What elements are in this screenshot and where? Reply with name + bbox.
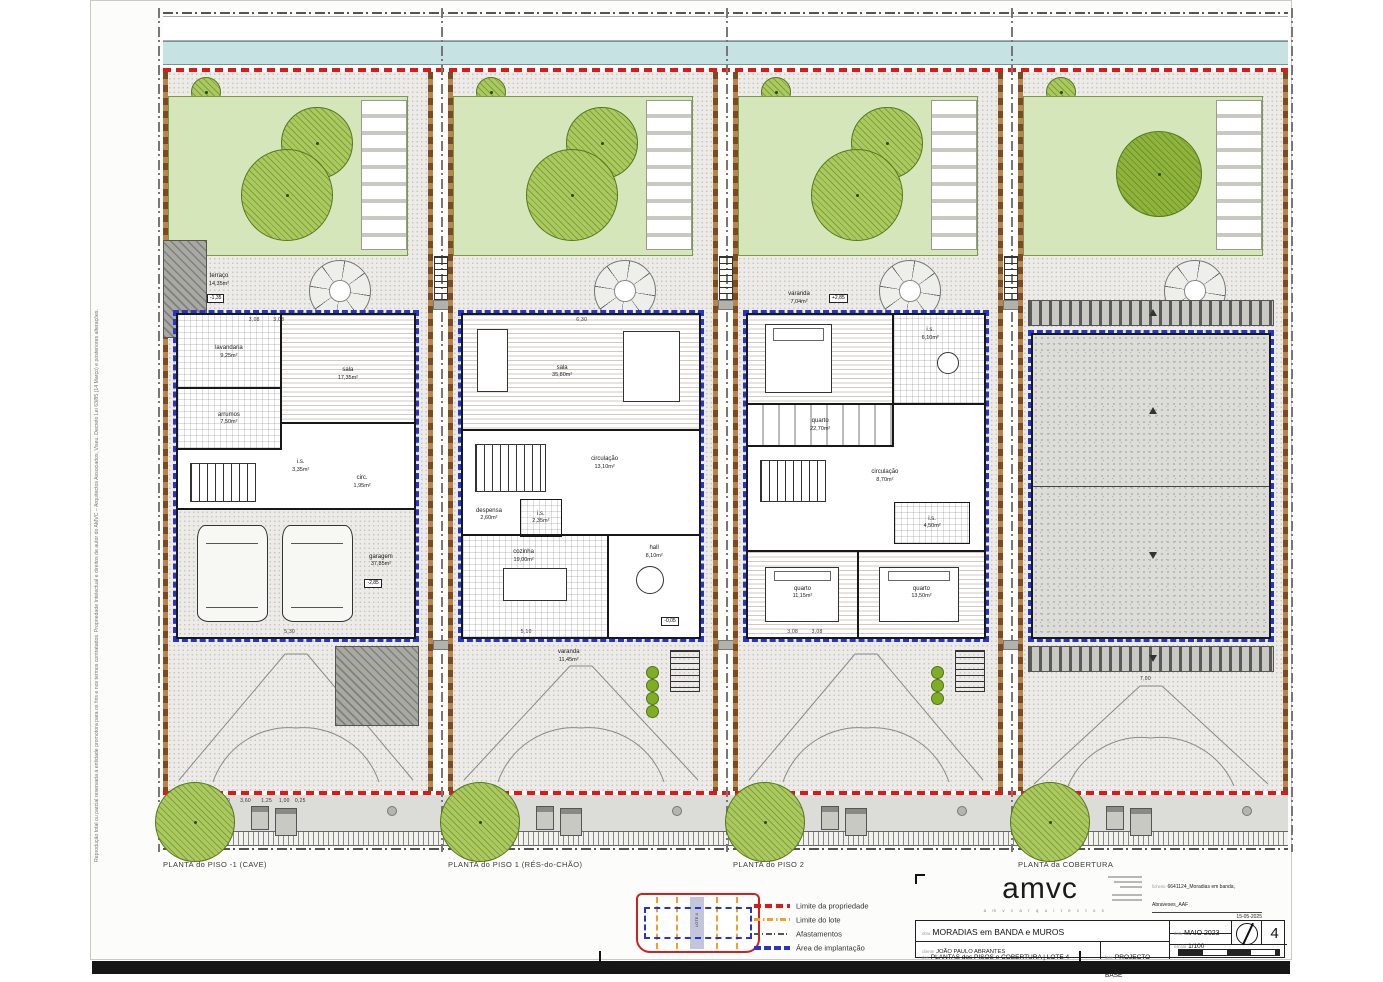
manhole bbox=[1242, 806, 1252, 816]
lot-area: 15,05 7,00 bbox=[1018, 72, 1288, 791]
neighbor-stairs bbox=[719, 256, 733, 302]
room-circulacao-label: circulação8,70m² bbox=[871, 469, 898, 483]
lot-wall-right bbox=[1283, 72, 1288, 791]
gap-wall bbox=[1003, 300, 1019, 310]
level-marker: -1,35 bbox=[207, 294, 224, 303]
shrub bbox=[646, 666, 659, 679]
lot-separator-line bbox=[1291, 8, 1293, 852]
utility-box bbox=[275, 808, 297, 836]
gap-wall bbox=[718, 640, 734, 650]
plan-caption: PLANTA do PISO -1 (CAVE) bbox=[163, 860, 267, 869]
car bbox=[282, 525, 353, 621]
level-marker: +2,85 bbox=[829, 294, 848, 303]
room-lavandaria: lavandaria9,25m² bbox=[178, 315, 282, 389]
date-scale-cell: dataMAIO 2023 escala1/100 4 bbox=[1169, 921, 1286, 959]
lot-separator-line bbox=[726, 8, 728, 852]
lot-separator-line bbox=[1011, 8, 1013, 852]
varanda-label: varanda7,04m² bbox=[788, 291, 810, 305]
exterior-stairs bbox=[670, 650, 700, 692]
roof-deck-top bbox=[1028, 300, 1274, 326]
dimension-text: 5,00 3,60 1,25 1,00 0,25 bbox=[219, 798, 306, 804]
shrub bbox=[931, 666, 944, 679]
utility-box bbox=[536, 806, 554, 830]
address-line bbox=[1120, 886, 1142, 888]
room-quarto-2: quarto11,15m² 3,08 3,08 bbox=[748, 550, 859, 637]
lot-wall-right bbox=[428, 72, 433, 791]
building-footprint: i.s.6,10m² quarto22,70m² circulação8,70m… bbox=[743, 310, 989, 642]
room-sala: sala17,35m² bbox=[282, 315, 414, 424]
legend-swatch bbox=[754, 904, 790, 908]
front-yard: varanda11,45m² bbox=[458, 644, 704, 791]
project-title-line: obraMORADIAS em BANDA e MUROS bbox=[922, 922, 1169, 940]
roof-outline bbox=[1028, 330, 1274, 642]
shrub bbox=[931, 692, 944, 705]
room-is-suite: i.s.6,10m² bbox=[894, 315, 984, 405]
level-marker: -0,05 bbox=[661, 617, 678, 626]
slope-arrow-icon bbox=[1149, 309, 1157, 316]
utility-box bbox=[1130, 808, 1152, 836]
utility-box bbox=[845, 808, 867, 836]
slope-arrow-icon bbox=[1149, 407, 1157, 414]
floor-plan-piso-2: i.s.6,10m² quarto22,70m² circulação8,70m… bbox=[746, 313, 986, 639]
keyplan-implantation-rect bbox=[644, 907, 752, 939]
room-is: i.s.2,35m² bbox=[520, 499, 562, 538]
bed bbox=[765, 324, 831, 393]
plan-panel-piso-2: varanda7,04m² +2,85 i.s.6,10m² quarto22,… bbox=[733, 10, 1003, 875]
stairs bbox=[190, 463, 256, 502]
legend-item-implantacao: Área de implantação bbox=[754, 939, 865, 957]
neighbor-stairs bbox=[1004, 256, 1018, 302]
sheet-bottom-bar bbox=[92, 961, 1290, 974]
legend: LOTE 4 Limite da propriedade Limite do l… bbox=[636, 891, 926, 961]
shrub bbox=[646, 705, 659, 718]
pergola-strip bbox=[1216, 100, 1262, 250]
driveway-splay bbox=[1028, 676, 1274, 788]
room-hall: hall8,10m² -0,05 bbox=[609, 534, 699, 637]
room-circulacao-label: circulação13,10m² bbox=[591, 456, 618, 470]
utility-box bbox=[821, 806, 839, 830]
front-yard bbox=[743, 644, 989, 791]
utility-box bbox=[1106, 806, 1124, 830]
pergola-strip bbox=[646, 100, 692, 250]
project-title: MORADIAS em BANDA e MUROS bbox=[932, 927, 1064, 937]
firm-logo: amvc bbox=[960, 872, 1120, 906]
lot-separator-line bbox=[441, 8, 443, 852]
room-cozinha: cozinha19,00m² 5,10 bbox=[463, 534, 609, 637]
street-tree bbox=[155, 782, 235, 862]
keyplan: LOTE 4 bbox=[636, 893, 760, 953]
stairs bbox=[475, 444, 546, 492]
plan-panel-cobertura: 15,05 7,00 PLANTA da COBERTURA bbox=[1018, 10, 1288, 875]
building-footprint: 6,30 sala35,80m² circulação13,10m² despe… bbox=[458, 310, 704, 642]
shrub bbox=[646, 692, 659, 705]
roof-plan bbox=[1031, 333, 1271, 639]
address-line bbox=[1114, 881, 1142, 883]
street-tree bbox=[725, 782, 805, 862]
gap-wall bbox=[433, 640, 449, 650]
plan-caption: PLANTA do PISO 2 bbox=[733, 860, 804, 869]
drawing-name-cell: desPLANTAS dos PISOS e COBERTURA | LOTE … bbox=[916, 942, 1101, 959]
room-is-label: i.s.3,35m² bbox=[292, 459, 309, 473]
file-row: ficheiro6641124_Moradias em banda, Abrav… bbox=[1152, 874, 1262, 913]
pergola-strip bbox=[931, 100, 977, 250]
floor-plan-res-do-chao: 6,30 sala35,80m² circulação13,10m² despe… bbox=[461, 313, 701, 639]
firm-logo-subtitle: a m v c a r q u i t e c t o s bbox=[945, 908, 1145, 913]
legend-swatch bbox=[754, 918, 790, 921]
project-info-cell: obraMORADIAS em BANDA e MUROS clienteJOÃ… bbox=[916, 921, 1169, 942]
dimension-text: 5,30 bbox=[284, 629, 295, 635]
tree bbox=[526, 149, 618, 241]
fold-mark bbox=[599, 951, 601, 974]
sheet-number: 4 bbox=[1262, 921, 1287, 945]
phase-cell: fasePROJECTO BASE bbox=[1101, 942, 1169, 959]
north-arrow-icon bbox=[1236, 923, 1258, 945]
plan-caption: PLANTA do PISO 1 (RÉS-do-CHÃO) bbox=[448, 860, 582, 869]
neighbor-structure bbox=[335, 646, 419, 726]
gap-wall bbox=[1003, 640, 1019, 650]
dimension-text: 3,08 3,08 bbox=[787, 629, 822, 635]
date-cell: dataMAIO 2023 bbox=[1170, 921, 1232, 934]
plan-caption: PLANTA da COBERTURA bbox=[1018, 860, 1113, 869]
tree bbox=[1116, 131, 1202, 217]
lot-wall-right bbox=[998, 72, 1003, 791]
roof-ridge-line bbox=[1033, 486, 1269, 487]
title-block: amvc a m v c a r q u i t e c t o s fiche… bbox=[915, 872, 1285, 960]
tree bbox=[811, 149, 903, 241]
dining-table bbox=[623, 331, 680, 402]
driveway-splay bbox=[743, 644, 989, 784]
dimension-text: 5,10 bbox=[521, 629, 532, 635]
manhole bbox=[672, 806, 682, 816]
north-symbol-cell bbox=[1232, 921, 1262, 945]
legend-swatch bbox=[754, 933, 790, 935]
copyright-vertical-text: Reprodução total ou parcial reservada à … bbox=[94, 147, 100, 862]
street-tree bbox=[440, 782, 520, 862]
lot-separator-line bbox=[158, 8, 160, 852]
kitchen-island bbox=[503, 568, 566, 600]
title-table: obraMORADIAS em BANDA e MUROS clienteJOÃ… bbox=[915, 920, 1285, 958]
legend-swatch bbox=[754, 946, 790, 950]
pergola-strip bbox=[361, 100, 407, 250]
gap-wall bbox=[433, 300, 449, 310]
tree bbox=[241, 149, 333, 241]
lot-area: 6,30 sala35,80m² circulação13,10m² despe… bbox=[448, 72, 718, 791]
utility-box bbox=[560, 808, 582, 836]
room-quarto-3: quarto13,50m² bbox=[859, 550, 984, 637]
street-tree bbox=[1010, 782, 1090, 862]
driveway-splay bbox=[458, 644, 704, 784]
manhole bbox=[957, 806, 967, 816]
exterior-stairs bbox=[955, 650, 985, 692]
room-is-2: i.s.4,50m² bbox=[894, 502, 970, 544]
plan-panel-res-do-chao: 6,30 sala35,80m² circulação13,10m² despe… bbox=[448, 10, 718, 875]
bathtub bbox=[937, 352, 959, 374]
shrub bbox=[931, 679, 944, 692]
dimension-text: 15,05 bbox=[1018, 468, 1024, 482]
address-line bbox=[1112, 899, 1142, 901]
room-sala: sala35,80m² bbox=[463, 315, 699, 431]
fold-mark bbox=[1079, 951, 1081, 974]
floor-plan-cave: 3,08 3,08 lavandaria9,25m² sala17,35m² a… bbox=[176, 313, 416, 639]
lot-area: terraço14,35m² -1,35 3,08 3,08 lavandari… bbox=[163, 72, 433, 791]
building-footprint: 3,08 3,08 lavandaria9,25m² sala17,35m² a… bbox=[173, 310, 419, 642]
plan-panel-cave: terraço14,35m² -1,35 3,08 3,08 lavandari… bbox=[163, 10, 433, 875]
graphic-scale-bar bbox=[1178, 949, 1280, 956]
room-quarto-principal bbox=[748, 315, 894, 405]
utility-box bbox=[251, 806, 269, 830]
level-marker: -2,85 bbox=[364, 579, 381, 588]
room-garagem: garagem37,85m² -2,85 5,30 bbox=[178, 508, 414, 637]
shrub bbox=[646, 679, 659, 692]
neighbor-stairs bbox=[434, 256, 448, 302]
car bbox=[197, 525, 268, 621]
room-arrumos: arrumos7,50m² bbox=[178, 389, 282, 450]
firm-address-text bbox=[1108, 876, 1144, 904]
corner-mark bbox=[915, 874, 925, 884]
lot-area: varanda7,04m² +2,85 i.s.6,10m² quarto22,… bbox=[733, 72, 1003, 791]
room-despensa-label: despensa2,60m² bbox=[476, 507, 502, 521]
front-yard bbox=[173, 644, 419, 791]
sofa bbox=[477, 329, 508, 393]
round-table bbox=[636, 566, 664, 594]
north-needle bbox=[1242, 923, 1254, 945]
wardrobe: quarto22,70m² bbox=[748, 405, 894, 447]
slope-arrow-icon bbox=[1149, 552, 1157, 559]
address-line bbox=[1112, 894, 1142, 896]
gap-wall bbox=[718, 300, 734, 310]
slope-arrow-icon bbox=[1149, 655, 1157, 662]
stairs bbox=[760, 460, 826, 502]
scalebar-cell bbox=[1170, 945, 1287, 959]
front-yard bbox=[1028, 676, 1274, 791]
room-circ-label: circ.1,95m² bbox=[354, 475, 371, 489]
lot-wall-right bbox=[713, 72, 718, 791]
address-line bbox=[1108, 876, 1142, 878]
drawing-name: PLANTAS dos PISOS e COBERTURA | LOTE 4 bbox=[931, 954, 1069, 961]
manhole bbox=[387, 806, 397, 816]
terrace-label: terraço14,35m² bbox=[209, 273, 229, 287]
roof-deck-bottom bbox=[1028, 646, 1274, 672]
scale-cell: escala1/100 bbox=[1170, 934, 1232, 945]
varanda-label: varanda11,45m² bbox=[558, 649, 580, 663]
